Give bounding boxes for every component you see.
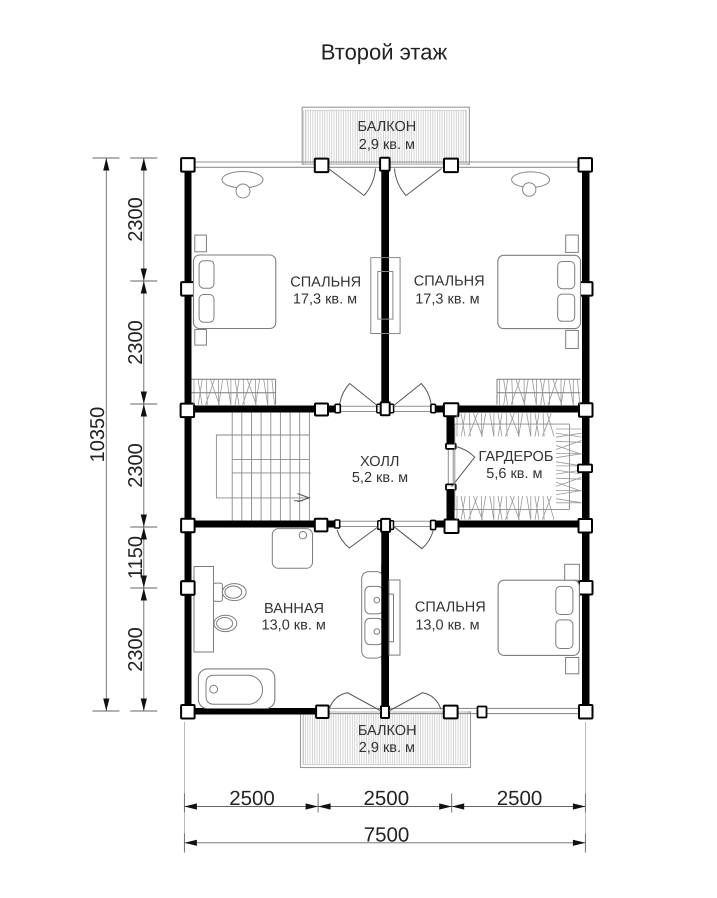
svg-text:СПАЛЬНЯ: СПАЛЬНЯ	[290, 274, 361, 290]
svg-text:17,3 кв. м: 17,3 кв. м	[293, 292, 357, 308]
svg-text:13,0 кв. м: 13,0 кв. м	[415, 618, 479, 634]
svg-text:2300: 2300	[125, 443, 147, 488]
svg-text:БАЛКОН: БАЛКОН	[358, 723, 417, 739]
svg-text:1150: 1150	[125, 536, 147, 579]
svg-text:СПАЛЬНЯ: СПАЛЬНЯ	[415, 600, 486, 616]
svg-text:2500: 2500	[229, 787, 275, 810]
svg-text:2,9 кв. м: 2,9 кв. м	[359, 137, 415, 153]
svg-text:2,9 кв. м: 2,9 кв. м	[359, 740, 415, 756]
svg-text:Второй этаж: Второй этаж	[321, 39, 448, 64]
svg-text:2500: 2500	[497, 787, 543, 810]
svg-text:ГАРДЕРОБ: ГАРДЕРОБ	[478, 449, 553, 465]
svg-text:13,0 кв. м: 13,0 кв. м	[262, 618, 326, 634]
svg-text:2300: 2300	[125, 320, 147, 365]
svg-text:ВАННАЯ: ВАННАЯ	[264, 601, 324, 617]
svg-text:17,3 кв. м: 17,3 кв. м	[415, 292, 479, 308]
svg-text:БАЛКОН: БАЛКОН	[358, 119, 417, 135]
svg-text:7500: 7500	[364, 823, 410, 846]
svg-text:2300: 2300	[125, 197, 147, 242]
svg-text:5,2 кв. м: 5,2 кв. м	[352, 470, 408, 486]
svg-text:2300: 2300	[125, 627, 147, 672]
svg-text:10350: 10350	[87, 407, 109, 463]
svg-text:СПАЛЬНЯ: СПАЛЬНЯ	[414, 274, 485, 290]
svg-text:ХОЛЛ: ХОЛЛ	[360, 454, 399, 470]
svg-text:2500: 2500	[363, 787, 409, 810]
svg-text:5,6 кв. м: 5,6 кв. м	[486, 466, 542, 482]
